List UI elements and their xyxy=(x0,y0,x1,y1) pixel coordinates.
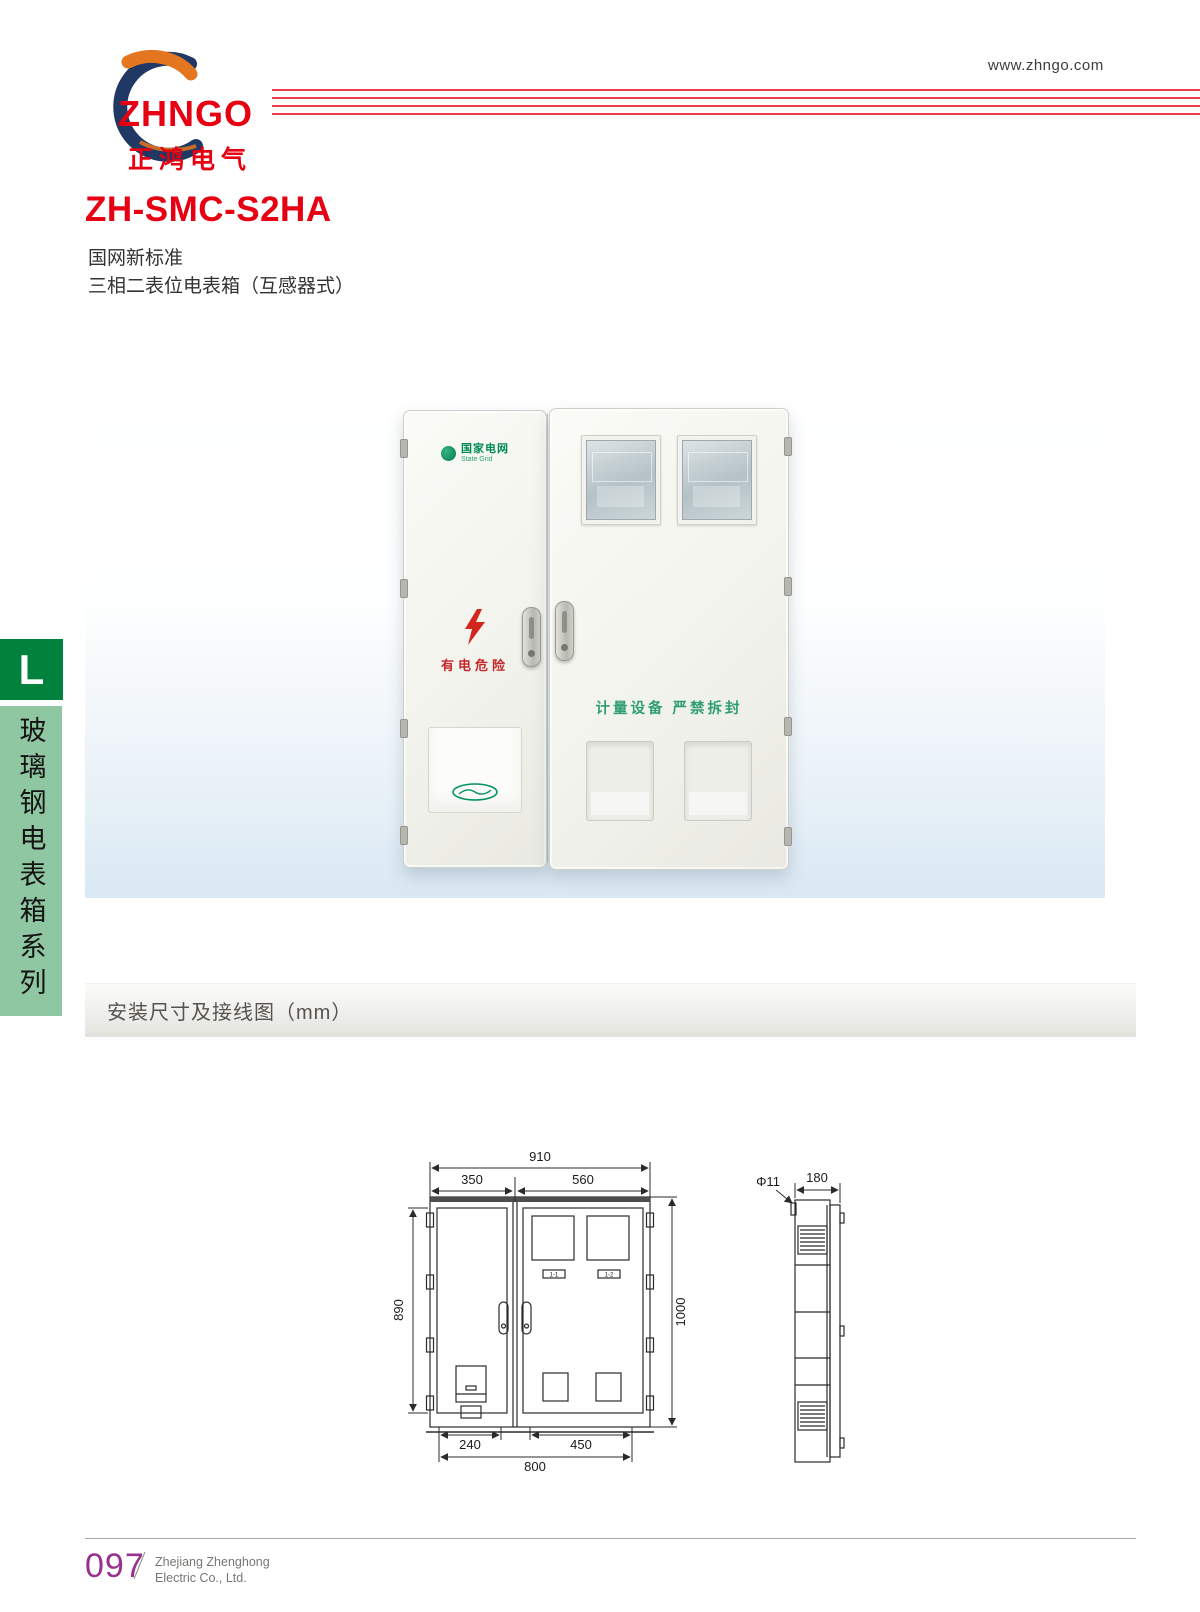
meterbox-right-door: 计量设备 严禁拆封 xyxy=(549,408,789,870)
catalog-page: www.zhngo.com ZHNGO 正鸿电气 ZH-SMC-S2HA 国网新… xyxy=(0,0,1200,1612)
footer-divider xyxy=(85,1538,1136,1539)
company-name: Zhejiang Zhenghong Electric Co., Ltd. xyxy=(155,1554,270,1587)
hinge xyxy=(400,579,408,598)
handle-slot xyxy=(529,617,534,639)
dim-height-door: 890 xyxy=(391,1299,406,1321)
window-glass xyxy=(682,440,752,520)
meter-window-1 xyxy=(581,435,661,525)
dim-width-total: 910 xyxy=(529,1149,551,1164)
hinge xyxy=(400,826,408,845)
sidebar-category-letter: L xyxy=(0,639,63,700)
handle-lock xyxy=(528,650,535,657)
green-oval-sticker-icon xyxy=(451,782,499,802)
handle-slot xyxy=(562,611,567,633)
right-door-handle xyxy=(555,601,574,661)
hinge xyxy=(784,717,792,736)
front-view-drawing xyxy=(426,1197,654,1432)
product-model-title: ZH-SMC-S2HA xyxy=(85,190,332,230)
handle-lock xyxy=(561,644,568,651)
window-glass xyxy=(586,440,656,520)
sidebar-series-tab: 玻璃钢电表箱系列 xyxy=(0,706,62,1016)
section-title: 安装尺寸及接线图（mm） xyxy=(107,996,352,1025)
header-line-2 xyxy=(272,97,1200,99)
window-label-2: 1-2 xyxy=(605,1273,614,1279)
header-line-4 xyxy=(272,113,1200,115)
brand-wordmark: ZHNGO xyxy=(118,93,253,134)
meter-window-2 xyxy=(677,435,757,525)
access-panel-1 xyxy=(586,741,654,821)
website-url: www.zhngo.com xyxy=(988,57,1104,74)
product-standard: 国网新标准 xyxy=(88,243,183,270)
dim-width-left: 350 xyxy=(461,1172,483,1187)
dim-depth: 180 xyxy=(806,1170,828,1185)
state-grid-label-en: State Grid xyxy=(461,455,509,464)
installation-dimension-drawing: 1-1 1-2 910 350 560 890 1000 240 450 800 xyxy=(380,1080,900,1490)
dim-bottom-right: 450 xyxy=(570,1437,592,1452)
seal-warning-text: 计量设备 严禁拆封 xyxy=(550,697,788,718)
product-photo: 国家电网 State Grid 有电危险 xyxy=(85,370,1105,898)
page-number: 097 xyxy=(85,1547,145,1586)
state-grid-logo: 国家电网 State Grid xyxy=(404,443,546,464)
brand-chinese-name: 正鸿电气 xyxy=(128,145,252,174)
dim-height-total: 1000 xyxy=(673,1298,688,1327)
company-name-line1: Zhejiang Zhenghong xyxy=(155,1554,270,1570)
dim-bottom-total: 800 xyxy=(524,1459,546,1474)
company-name-line2: Electric Co., Ltd. xyxy=(155,1570,270,1586)
product-description: 三相二表位电表箱（互感器式） xyxy=(88,271,354,298)
window-label-1: 1-1 xyxy=(550,1273,559,1279)
hinge xyxy=(784,577,792,596)
sidebar-series-label: 玻璃钢电表箱系列 xyxy=(12,716,51,1004)
dim-hole-diameter: Φ11 xyxy=(756,1174,780,1189)
header-line-1 xyxy=(272,89,1200,91)
header-line-3 xyxy=(272,105,1200,107)
section-header-bar: 安装尺寸及接线图（mm） xyxy=(85,983,1136,1037)
side-view-drawing xyxy=(791,1200,844,1462)
hinge xyxy=(784,827,792,846)
left-door-handle xyxy=(522,607,541,667)
hinge xyxy=(400,719,408,738)
meter-viewing-windows xyxy=(550,435,788,525)
front-view-dimensions xyxy=(408,1162,677,1462)
dim-width-right: 560 xyxy=(572,1172,594,1187)
dim-bottom-left: 240 xyxy=(459,1437,481,1452)
bottom-access-panels xyxy=(550,741,788,821)
meterbox-left-door: 国家电网 State Grid 有电危险 xyxy=(403,410,547,868)
state-grid-emblem-icon xyxy=(441,446,456,461)
company-logo: ZHNGO 正鸿电气 xyxy=(70,46,330,181)
access-panel-2 xyxy=(684,741,752,821)
state-grid-label: 国家电网 xyxy=(461,443,509,455)
left-door-bottom-panel xyxy=(428,727,522,813)
